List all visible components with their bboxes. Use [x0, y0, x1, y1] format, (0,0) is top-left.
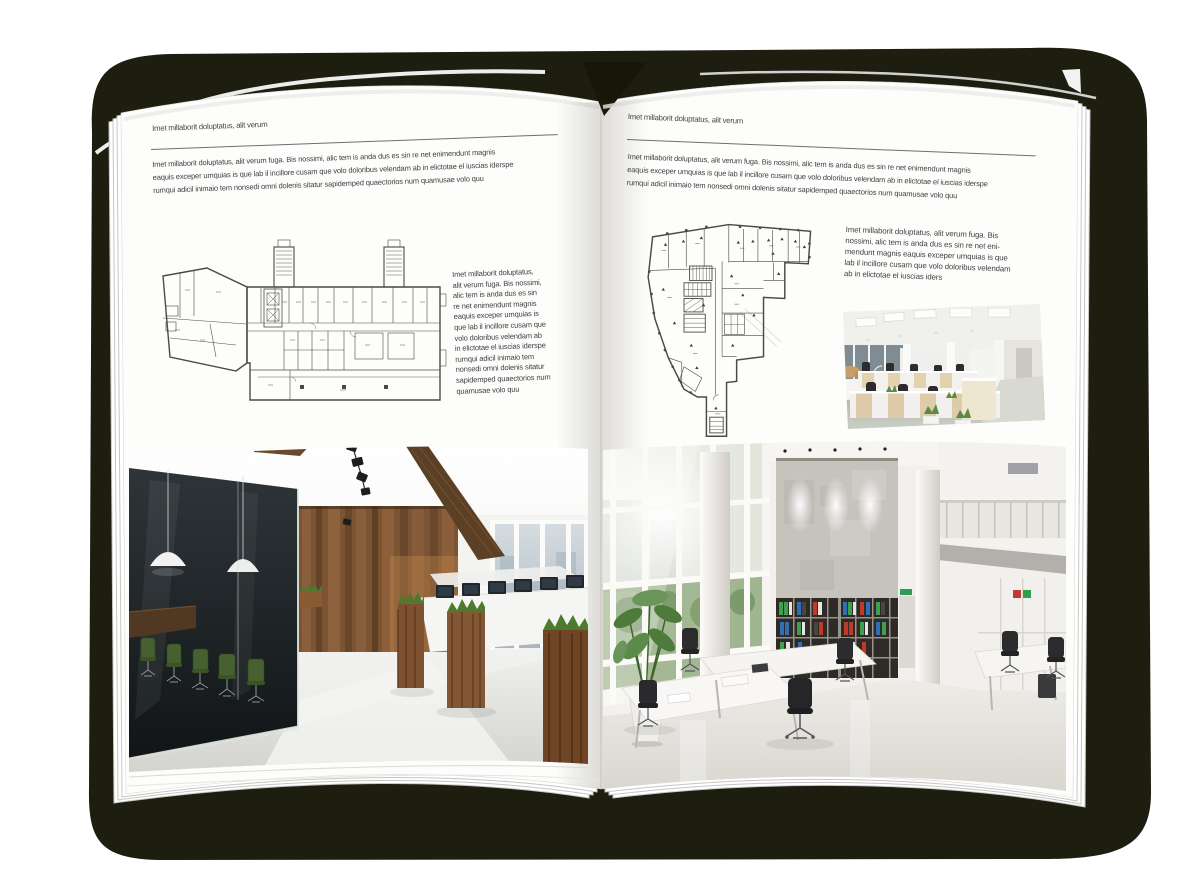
mezzanine [938, 440, 1066, 574]
column [916, 470, 940, 696]
right-side-text: Imet millaborit doluptatus, alit verum f… [844, 224, 1012, 286]
glass-meeting-room [129, 468, 298, 758]
book-graphic [0, 0, 1200, 891]
photo-small-office [840, 300, 1050, 435]
photo-right-atrium [590, 438, 1066, 792]
book-mockup: Imet millaborit doluptatus, alit verum I… [0, 0, 1200, 891]
exit-sign [900, 589, 912, 595]
left-side-text: Imet millaborit doluptatus,alit verum fu… [452, 267, 551, 398]
photo-left-office [129, 440, 589, 775]
